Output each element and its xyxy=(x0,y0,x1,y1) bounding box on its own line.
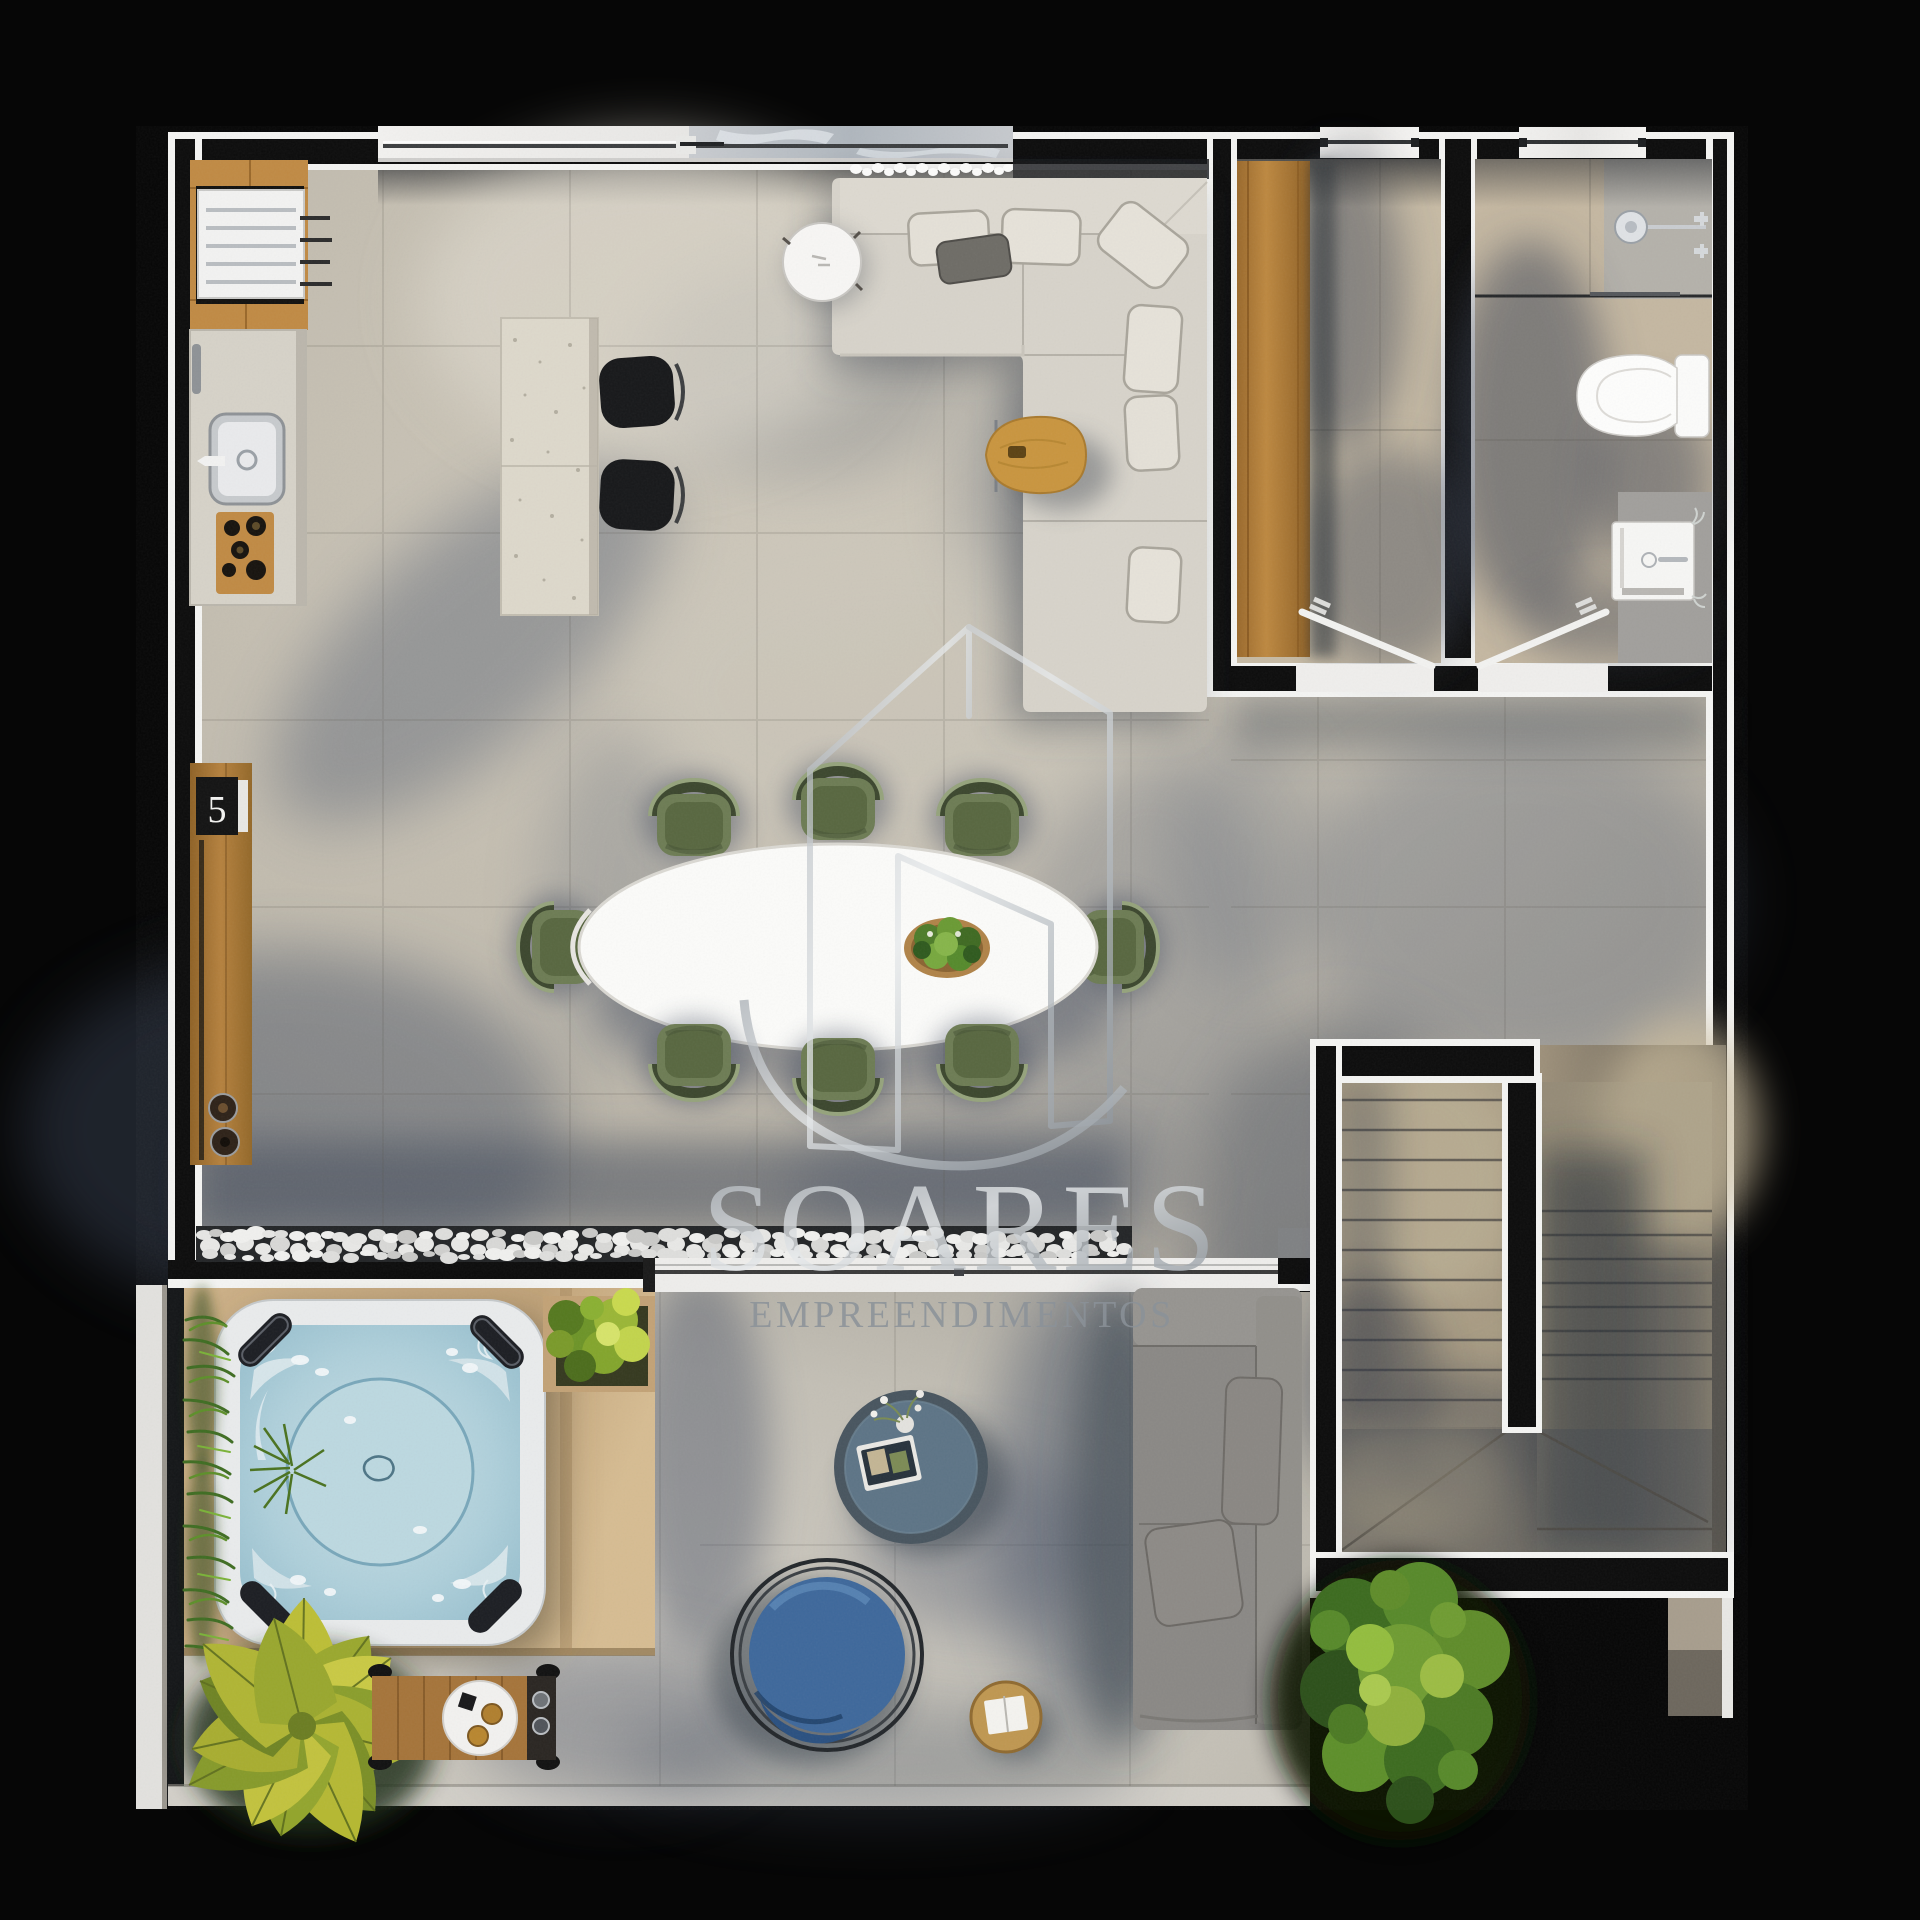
svg-text:SOARES: SOARES xyxy=(702,1159,1221,1298)
svg-text:EMPREENDIMENTOS: EMPREENDIMENTOS xyxy=(749,1294,1175,1336)
